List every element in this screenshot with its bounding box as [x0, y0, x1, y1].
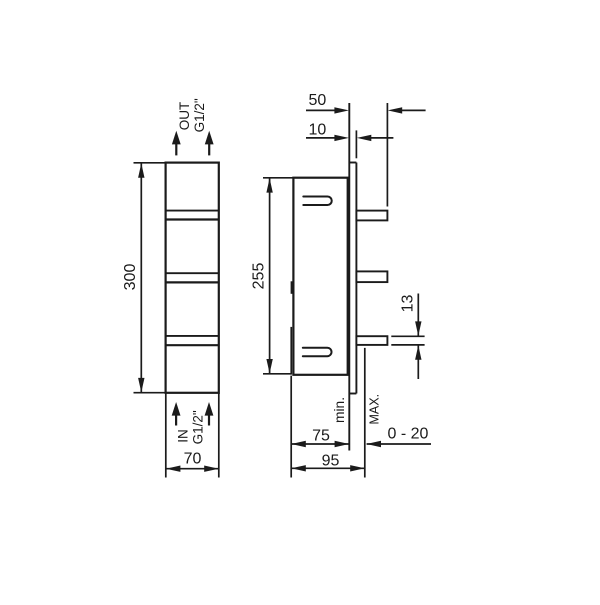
svg-text:10: 10 — [309, 121, 327, 138]
svg-text:70: 70 — [184, 451, 202, 468]
svg-text:255: 255 — [251, 263, 268, 290]
svg-text:0 - 20: 0 - 20 — [388, 426, 429, 443]
svg-text:min.: min. — [332, 397, 347, 423]
svg-text:95: 95 — [322, 453, 340, 470]
svg-text:50: 50 — [309, 92, 327, 109]
svg-text:G1/2": G1/2" — [192, 98, 207, 132]
svg-text:75: 75 — [312, 427, 330, 444]
svg-text:MAX.: MAX. — [367, 394, 381, 425]
svg-text:13: 13 — [400, 295, 417, 313]
svg-text:300: 300 — [122, 264, 139, 291]
svg-text:OUT: OUT — [177, 102, 192, 131]
svg-text:IN: IN — [176, 429, 191, 443]
svg-text:G1/2": G1/2" — [191, 410, 206, 444]
